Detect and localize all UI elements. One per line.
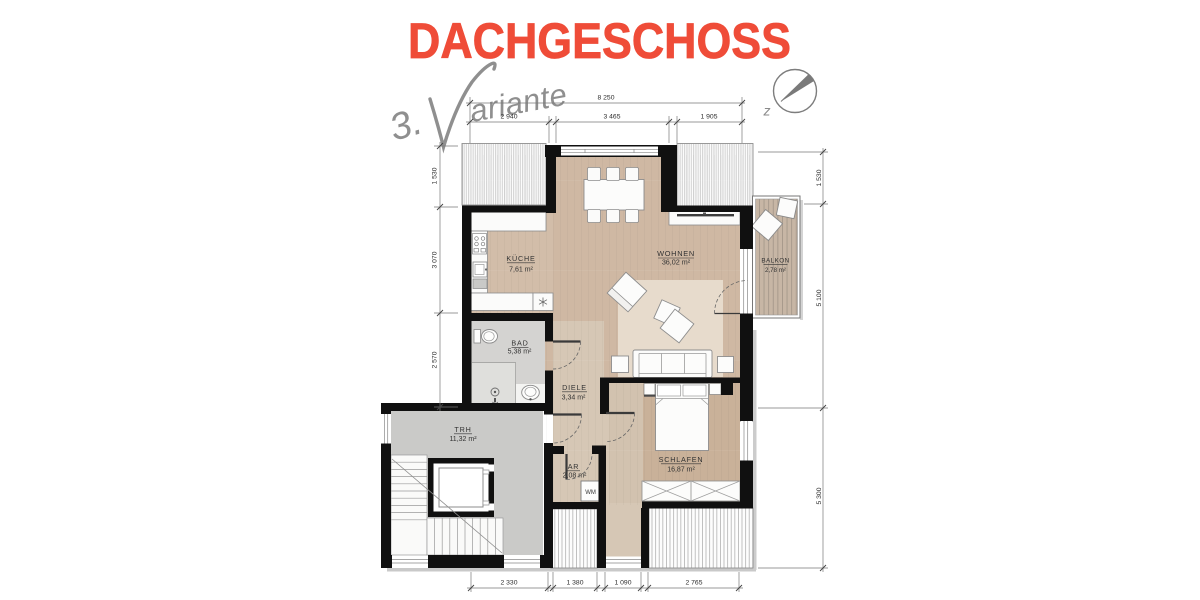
- svg-text:z: z: [763, 103, 771, 119]
- svg-text:8 250: 8 250: [597, 95, 614, 102]
- svg-text:TRH: TRH: [454, 425, 471, 434]
- svg-text:16,87 m²: 16,87 m²: [667, 466, 695, 473]
- svg-text:BALKON: BALKON: [761, 258, 789, 265]
- svg-text:KÜCHE: KÜCHE: [506, 254, 535, 263]
- svg-text:AR: AR: [568, 462, 580, 471]
- svg-text:BAD: BAD: [511, 339, 528, 348]
- svg-text:SCHLAFEN: SCHLAFEN: [659, 455, 704, 464]
- svg-text:DIELE: DIELE: [562, 383, 587, 392]
- svg-text:36,02 m²: 36,02 m²: [662, 258, 691, 267]
- svg-text:2 570: 2 570: [432, 351, 439, 368]
- svg-text:2 765: 2 765: [685, 580, 702, 587]
- svg-text:DACHGESCHOSS: DACHGESCHOSS: [408, 13, 791, 69]
- svg-text:2,08 m²: 2,08 m²: [563, 472, 587, 479]
- svg-text:3 465: 3 465: [603, 114, 620, 121]
- svg-text:7,61 m²: 7,61 m²: [509, 267, 533, 274]
- svg-text:1 905: 1 905: [700, 114, 717, 121]
- svg-text:11,32 m²: 11,32 m²: [449, 436, 477, 443]
- svg-text:WM: WM: [585, 490, 596, 496]
- svg-text:3 070: 3 070: [432, 251, 439, 268]
- svg-text:2 330: 2 330: [500, 580, 517, 587]
- svg-text:3,34 m²: 3,34 m²: [562, 394, 586, 401]
- svg-text:2 940: 2 940: [500, 114, 517, 121]
- svg-text:1 380: 1 380: [566, 580, 583, 587]
- svg-text:5 100: 5 100: [816, 289, 823, 306]
- svg-text:1 090: 1 090: [614, 580, 631, 587]
- svg-text:1 530: 1 530: [432, 167, 439, 184]
- svg-text:5,38 m²: 5,38 m²: [508, 349, 532, 356]
- svg-text:2,78 m²: 2,78 m²: [765, 267, 786, 274]
- svg-text:5 300: 5 300: [816, 487, 823, 504]
- svg-text:1 530: 1 530: [816, 169, 823, 186]
